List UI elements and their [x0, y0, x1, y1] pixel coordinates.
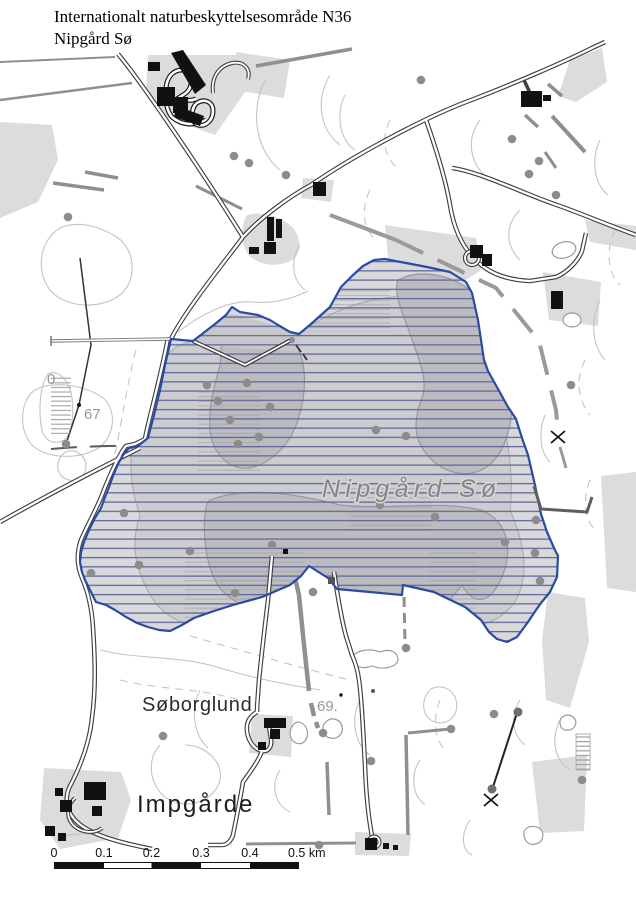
svg-text:0: 0 [51, 846, 58, 860]
svg-text:67: 67 [84, 406, 101, 423]
svg-text:Søborglund: Søborglund [142, 694, 252, 716]
svg-text:Internationalt naturbeskyttels: Internationalt naturbeskyttelsesområde N… [54, 7, 351, 26]
svg-text:69.: 69. [317, 698, 338, 715]
svg-text:Nipgård Sø: Nipgård Sø [54, 29, 132, 48]
svg-text:0.3: 0.3 [192, 846, 209, 860]
svg-text:0.4: 0.4 [241, 846, 258, 860]
svg-text:0.1: 0.1 [95, 846, 112, 860]
svg-text:0.5 km: 0.5 km [288, 846, 326, 860]
svg-text:Nipgård Sø: Nipgård Sø [322, 475, 501, 503]
svg-text:Impgårde: Impgårde [137, 791, 254, 818]
svg-text:0.2: 0.2 [143, 846, 160, 860]
svg-text:0: 0 [47, 371, 55, 388]
